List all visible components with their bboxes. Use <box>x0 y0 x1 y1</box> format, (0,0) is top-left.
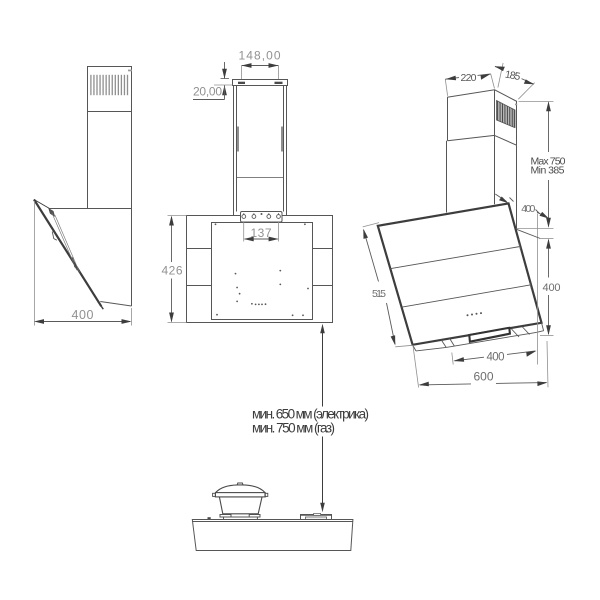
svg-text:мин. 650 мм (электрика): мин. 650 мм (электрика) <box>252 407 369 422</box>
svg-text:515: 515 <box>372 288 386 300</box>
svg-text:148,00: 148,00 <box>239 49 281 63</box>
svg-text:600: 600 <box>474 369 494 383</box>
svg-text:мин. 750 мм (газ): мин. 750 мм (газ) <box>252 421 335 436</box>
svg-text:400: 400 <box>72 308 94 322</box>
svg-text:400: 400 <box>487 352 505 364</box>
svg-text:400: 400 <box>521 203 535 215</box>
svg-text:400: 400 <box>543 282 561 294</box>
svg-text:220: 220 <box>461 72 477 84</box>
svg-text:426: 426 <box>162 264 183 278</box>
svg-text:20,00: 20,00 <box>193 84 222 98</box>
svg-text:137: 137 <box>251 226 272 240</box>
svg-text:Min 385: Min 385 <box>531 164 565 176</box>
